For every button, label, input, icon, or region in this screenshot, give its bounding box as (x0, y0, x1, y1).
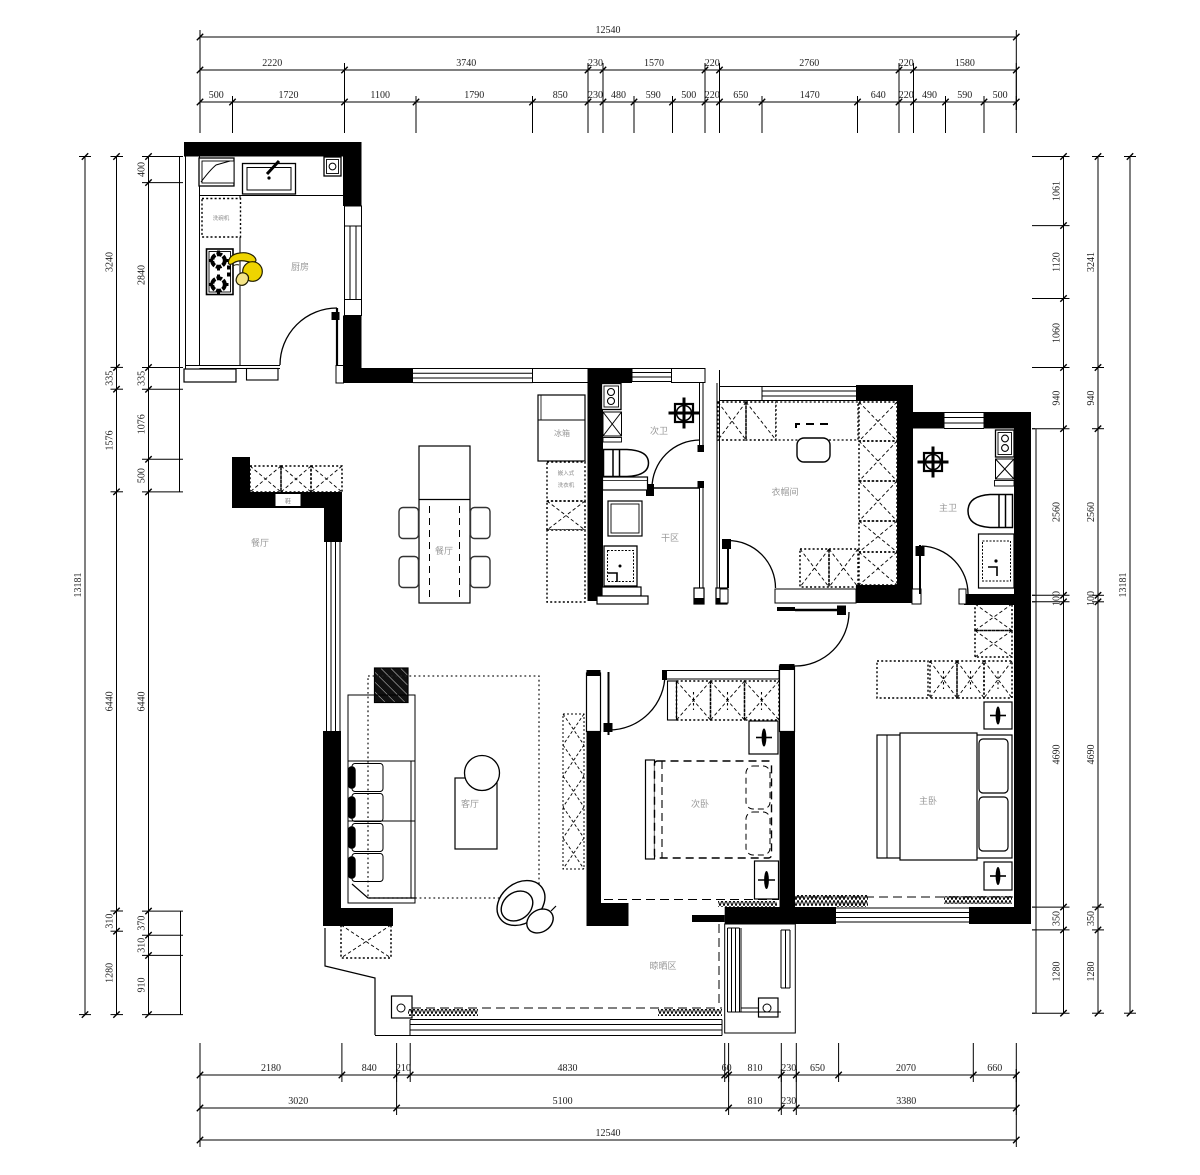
svg-text:1790: 1790 (464, 90, 484, 101)
svg-text:4690: 4690 (1052, 744, 1063, 764)
svg-text:2180: 2180 (261, 1063, 281, 1074)
svg-text:400: 400 (137, 162, 148, 177)
svg-text:640: 640 (871, 90, 886, 101)
svg-text:5100: 5100 (553, 1096, 573, 1107)
svg-text:60: 60 (722, 1063, 732, 1074)
svg-text:660: 660 (987, 1063, 1002, 1074)
svg-text:13181: 13181 (1118, 573, 1129, 598)
svg-text:2070: 2070 (896, 1063, 916, 1074)
svg-text:350: 350 (1086, 911, 1097, 926)
svg-text:2760: 2760 (799, 58, 819, 69)
svg-text:1061: 1061 (1052, 181, 1063, 201)
svg-text:840: 840 (362, 1063, 377, 1074)
svg-text:客厅: 客厅 (461, 798, 479, 809)
svg-text:1120: 1120 (1052, 252, 1063, 272)
svg-text:1580: 1580 (955, 58, 975, 69)
svg-text:12540: 12540 (596, 25, 621, 36)
svg-text:1280: 1280 (105, 963, 116, 983)
svg-text:餐厅: 餐厅 (435, 545, 453, 556)
svg-text:冰箱: 冰箱 (554, 428, 570, 438)
svg-text:1570: 1570 (644, 58, 664, 69)
svg-text:厨房: 厨房 (291, 261, 309, 272)
svg-text:12540: 12540 (596, 1128, 621, 1139)
svg-text:洗碗机: 洗碗机 (213, 214, 230, 222)
svg-text:3380: 3380 (896, 1096, 916, 1107)
svg-text:370: 370 (137, 916, 148, 931)
svg-text:洗衣机: 洗衣机 (558, 481, 575, 489)
svg-text:1576: 1576 (105, 431, 116, 451)
svg-text:100: 100 (1052, 591, 1063, 606)
svg-text:1720: 1720 (279, 90, 299, 101)
svg-text:干区: 干区 (661, 533, 679, 543)
svg-text:210: 210 (396, 1063, 411, 1074)
svg-text:主卧: 主卧 (919, 795, 937, 806)
svg-text:3241: 3241 (1086, 252, 1097, 272)
svg-text:590: 590 (646, 90, 661, 101)
svg-text:鞋: 鞋 (285, 498, 291, 506)
svg-text:餐厅: 餐厅 (251, 537, 269, 548)
svg-text:500: 500 (137, 468, 148, 483)
svg-text:13181: 13181 (73, 573, 84, 598)
svg-text:940: 940 (1052, 391, 1063, 406)
svg-text:1470: 1470 (800, 90, 820, 101)
svg-text:主卫: 主卫 (939, 502, 957, 513)
svg-text:350: 350 (1052, 911, 1063, 926)
svg-text:480: 480 (611, 90, 626, 101)
svg-text:500: 500 (681, 90, 696, 101)
svg-text:6440: 6440 (137, 692, 148, 712)
svg-text:衣帽间: 衣帽间 (771, 486, 798, 497)
svg-text:810: 810 (747, 1063, 762, 1074)
svg-text:嵌入式: 嵌入式 (558, 469, 575, 477)
svg-text:335: 335 (137, 371, 148, 386)
svg-text:310: 310 (137, 938, 148, 953)
svg-text:晾晒区: 晾晒区 (649, 960, 676, 971)
svg-text:650: 650 (810, 1063, 825, 1074)
svg-text:3740: 3740 (456, 58, 476, 69)
svg-text:1076: 1076 (137, 414, 148, 434)
svg-text:220: 220 (705, 58, 720, 69)
svg-text:590: 590 (957, 90, 972, 101)
svg-text:230: 230 (781, 1096, 796, 1107)
svg-text:2840: 2840 (137, 265, 148, 285)
svg-text:1280: 1280 (1052, 962, 1063, 982)
svg-text:650: 650 (733, 90, 748, 101)
svg-text:500: 500 (209, 90, 224, 101)
svg-text:230: 230 (588, 58, 603, 69)
svg-text:230: 230 (588, 90, 603, 101)
svg-text:230: 230 (781, 1063, 796, 1074)
svg-text:100: 100 (1086, 591, 1097, 606)
svg-text:810: 810 (747, 1096, 762, 1107)
svg-text:次卧: 次卧 (691, 798, 709, 809)
svg-text:4830: 4830 (557, 1063, 577, 1074)
svg-text:1060: 1060 (1052, 323, 1063, 343)
svg-text:1280: 1280 (1086, 962, 1097, 982)
svg-text:500: 500 (993, 90, 1008, 101)
svg-text:850: 850 (553, 90, 568, 101)
svg-text:335: 335 (105, 371, 116, 386)
svg-text:220: 220 (899, 58, 914, 69)
svg-text:4690: 4690 (1086, 744, 1097, 764)
svg-text:2560: 2560 (1086, 502, 1097, 522)
svg-text:6440: 6440 (105, 691, 116, 711)
svg-text:3240: 3240 (105, 252, 116, 272)
svg-text:220: 220 (899, 90, 914, 101)
svg-text:490: 490 (922, 90, 937, 101)
svg-text:2560: 2560 (1052, 502, 1063, 522)
svg-text:1100: 1100 (370, 90, 390, 101)
svg-text:910: 910 (137, 978, 148, 993)
svg-text:次卫: 次卫 (650, 425, 668, 436)
svg-text:2220: 2220 (262, 58, 282, 69)
svg-text:220: 220 (705, 90, 720, 101)
svg-text:3020: 3020 (288, 1096, 308, 1107)
svg-text:310: 310 (105, 914, 116, 929)
svg-text:940: 940 (1086, 391, 1097, 406)
